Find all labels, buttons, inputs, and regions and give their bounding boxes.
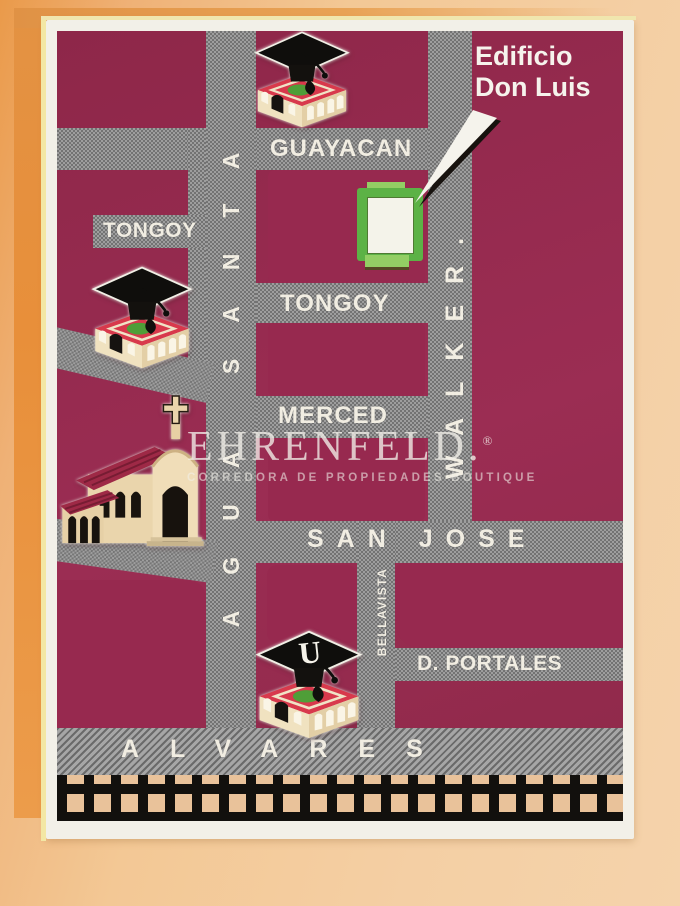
photo-background: GUAYACAN TONGOY TONGOY MERCED SAN JOSE D… — [0, 0, 680, 906]
railroad-rail-bottom — [57, 812, 623, 821]
marker-inner-square — [367, 197, 414, 254]
street-label-agua-santa: AGUA SANTA — [216, 92, 246, 652]
marker-tab — [365, 255, 409, 267]
street-label-tongoy: TONGOY — [280, 290, 390, 318]
street-label-tongoy-west: TONGOY — [103, 219, 197, 243]
city-block — [268, 323, 425, 396]
callout-line2: Don Luis — [475, 72, 591, 103]
school-icon — [251, 31, 353, 129]
railroad-track — [57, 775, 623, 821]
street-label-walker: WALKER. — [440, 198, 470, 498]
street-label-merced: MERCED — [278, 402, 388, 430]
railroad-rail-top — [57, 784, 623, 794]
university-cap-letter: U — [291, 633, 329, 672]
street-label-san-jose: SAN JOSE — [307, 525, 537, 554]
flyer-card: GUAYACAN TONGOY TONGOY MERCED SAN JOSE D… — [46, 20, 634, 839]
location-map: GUAYACAN TONGOY TONGOY MERCED SAN JOSE D… — [57, 31, 623, 821]
school-icon — [83, 264, 201, 370]
city-block — [268, 438, 425, 521]
city-block — [57, 580, 206, 728]
street-label-bellavista: BELLAVISTA — [374, 557, 390, 667]
railroad-ties — [57, 794, 623, 812]
building-marker — [357, 188, 423, 261]
callout-line1: Edificio — [475, 41, 591, 72]
street-label-guayacan: GUAYACAN — [270, 135, 412, 163]
callout-label: Edificio Don Luis — [475, 41, 591, 103]
church-icon — [59, 394, 209, 549]
street-label-d-portales: D. PORTALES — [417, 652, 562, 676]
railroad-ties-top — [57, 775, 623, 784]
registered-mark: ® — [483, 433, 493, 448]
city-block — [395, 563, 623, 648]
